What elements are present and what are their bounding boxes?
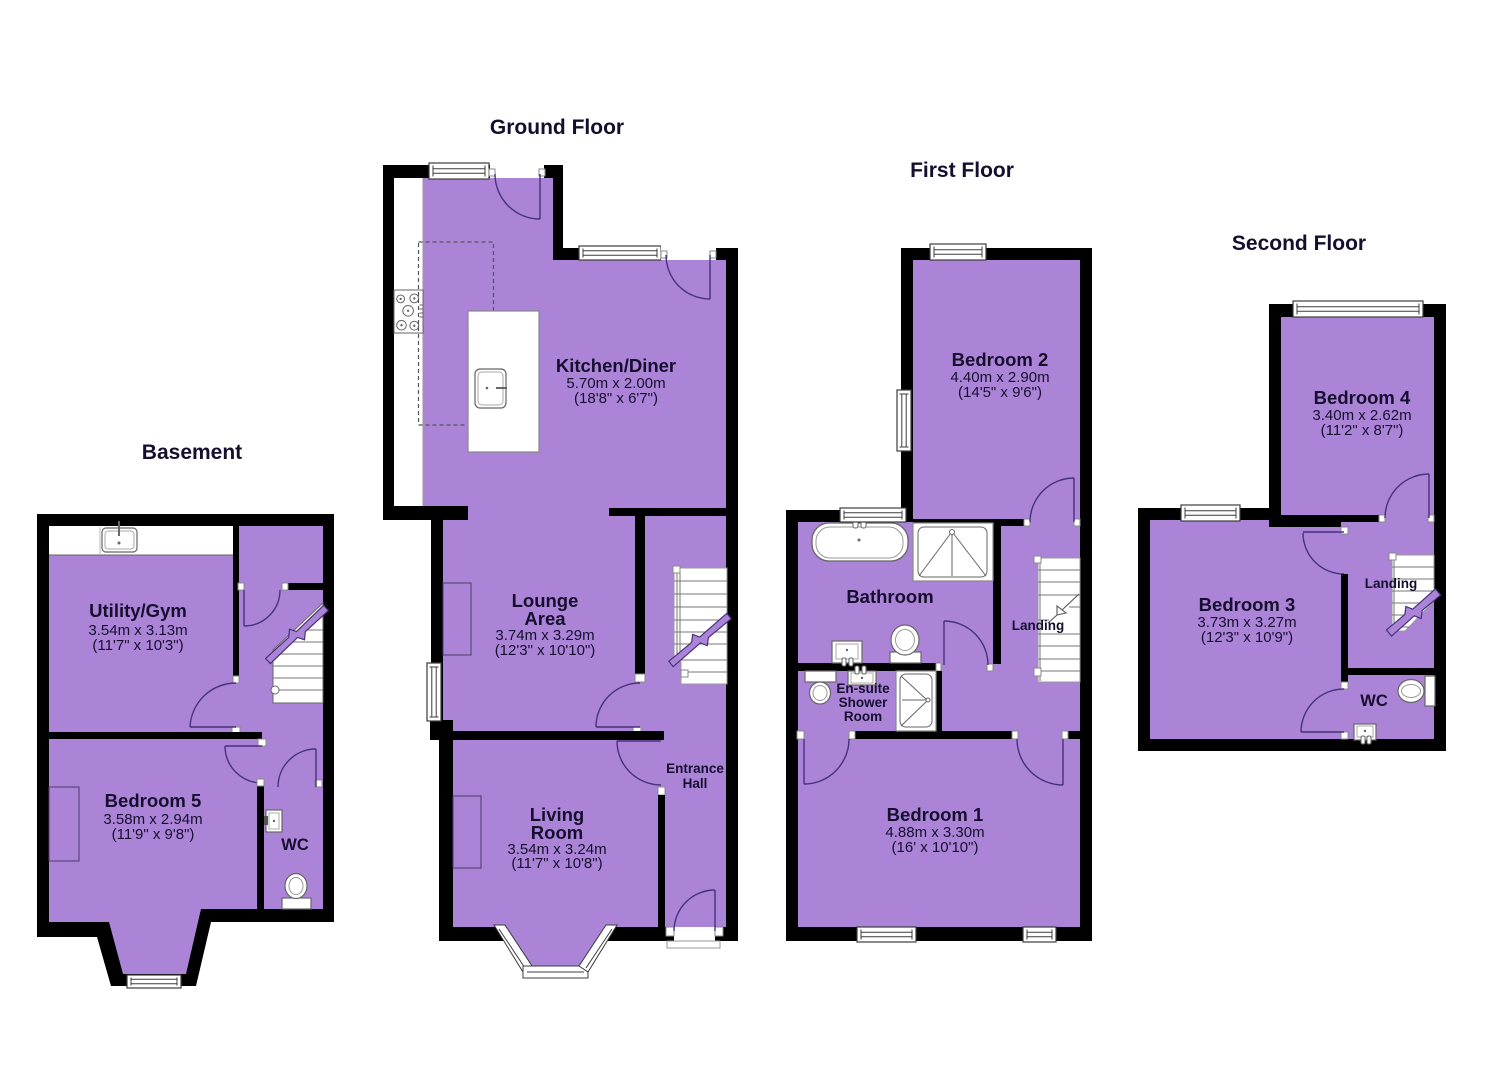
svg-text:WC: WC [281, 836, 309, 854]
svg-text:Shower: Shower [839, 695, 889, 710]
svg-text:Basement: Basement [142, 441, 242, 464]
svg-text:Bedroom 2: Bedroom 2 [952, 349, 1049, 370]
svg-text:Room: Room [844, 709, 882, 724]
svg-text:(18'8" x 6'7"): (18'8" x 6'7") [574, 390, 658, 407]
svg-text:(12'3" x 10'9"): (12'3" x 10'9") [1201, 629, 1293, 646]
svg-text:Ground Floor: Ground Floor [490, 116, 624, 139]
svg-text:First Floor: First Floor [910, 159, 1014, 182]
svg-text:Bedroom 5: Bedroom 5 [105, 790, 202, 811]
svg-text:WC: WC [1360, 692, 1388, 710]
svg-text:Second Floor: Second Floor [1232, 232, 1366, 255]
svg-text:Landing: Landing [1012, 618, 1065, 633]
svg-text:Entrance: Entrance [666, 761, 724, 776]
svg-text:Kitchen/Diner: Kitchen/Diner [556, 355, 676, 376]
svg-text:Area: Area [524, 608, 566, 629]
svg-text:Room: Room [531, 822, 583, 843]
svg-text:Bedroom 4: Bedroom 4 [1314, 387, 1411, 408]
svg-text:Utility/Gym: Utility/Gym [89, 600, 187, 621]
svg-text:(11'2" x 8'7"): (11'2" x 8'7") [1321, 422, 1404, 439]
svg-text:(11'9" x 9'8"): (11'9" x 9'8") [112, 826, 195, 843]
svg-text:(16' x 10'10"): (16' x 10'10") [892, 839, 979, 856]
svg-text:Hall: Hall [683, 776, 708, 791]
svg-text:Bedroom 3: Bedroom 3 [1199, 594, 1296, 615]
svg-text:En-suite: En-suite [836, 681, 890, 696]
svg-text:Landing: Landing [1365, 576, 1418, 591]
svg-text:Bathroom: Bathroom [846, 586, 933, 607]
svg-text:(14'5" x 9'6"): (14'5" x 9'6") [958, 384, 1042, 401]
svg-text:(11'7" x 10'3"): (11'7" x 10'3") [92, 637, 183, 654]
svg-text:(11'7" x 10'8"): (11'7" x 10'8") [511, 855, 602, 872]
svg-text:(12'3" x 10'10"): (12'3" x 10'10") [495, 642, 596, 659]
svg-text:Bedroom 1: Bedroom 1 [887, 804, 984, 825]
